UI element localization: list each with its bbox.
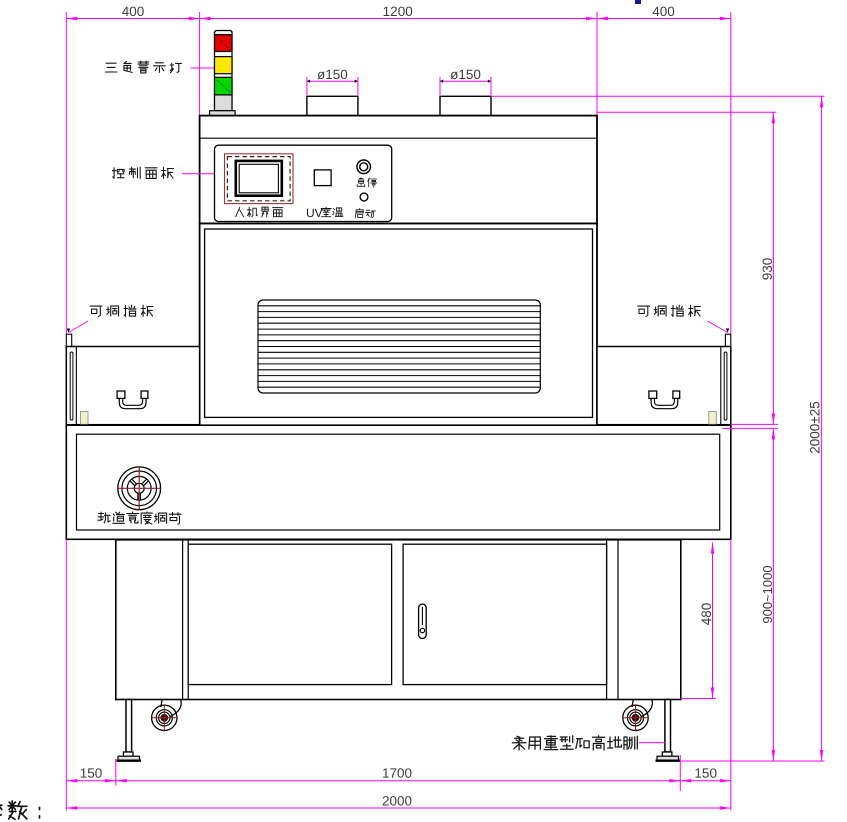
svg-text:1700: 1700	[382, 766, 412, 781]
svg-text:2000±25: 2000±25	[808, 401, 823, 453]
svg-text:ø150: ø150	[317, 67, 348, 82]
svg-text:ø150: ø150	[450, 67, 481, 82]
svg-text:1200: 1200	[383, 4, 413, 19]
svg-text:400: 400	[122, 4, 145, 19]
svg-text:150: 150	[80, 766, 103, 781]
svg-text:930: 930	[760, 258, 775, 281]
svg-text:150: 150	[694, 766, 717, 781]
svg-text:900~1000: 900~1000	[760, 565, 775, 623]
svg-text:480: 480	[699, 603, 714, 626]
svg-text:2000: 2000	[382, 793, 412, 808]
svg-text:400: 400	[652, 4, 675, 19]
svg-text:UV: UV	[306, 206, 323, 220]
